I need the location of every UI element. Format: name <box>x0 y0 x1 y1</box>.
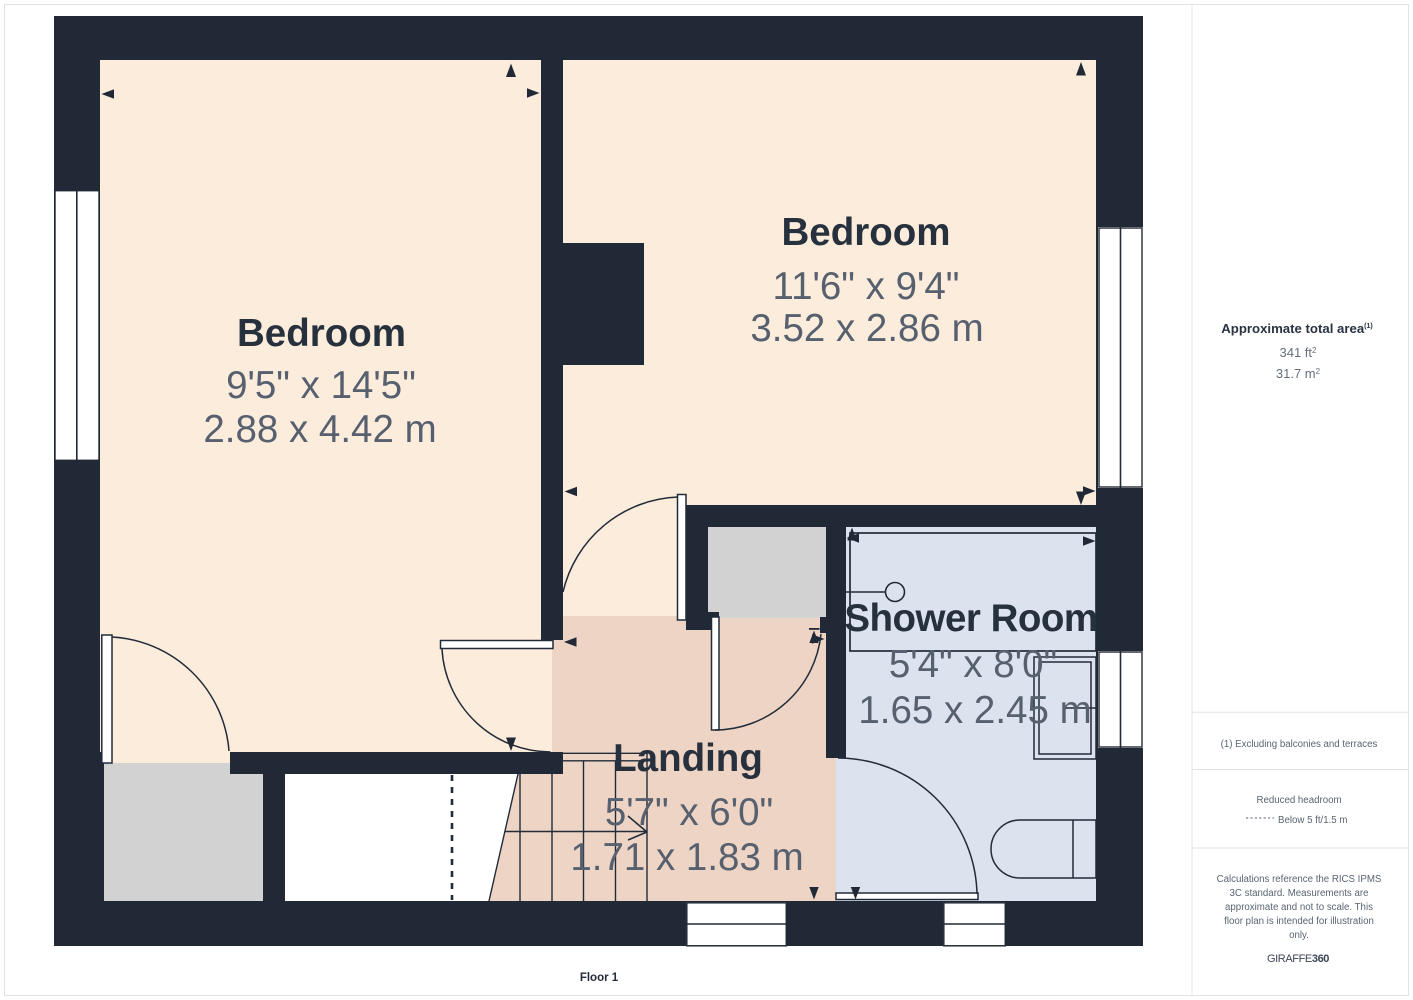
svg-text:9'5" x 14'5": 9'5" x 14'5" <box>226 364 416 407</box>
svg-text:Reduced headroom: Reduced headroom <box>1256 795 1341 806</box>
svg-text:(1) Excluding balconies and te: (1) Excluding balconies and terraces <box>1221 739 1378 750</box>
svg-text:Floor 1: Floor 1 <box>580 972 619 984</box>
svg-text:Below 5 ft/1.5 m: Below 5 ft/1.5 m <box>1278 815 1347 826</box>
svg-text:1.65 x 2.45 m: 1.65 x 2.45 m <box>858 689 1091 732</box>
svg-text:5'7" x 6'0": 5'7" x 6'0" <box>605 791 773 834</box>
svg-text:1.71 x 1.83 m: 1.71 x 1.83 m <box>570 836 803 879</box>
svg-text:approximate and not to scale.: approximate and not to scale. This <box>1225 902 1373 913</box>
svg-text:341 ft2: 341 ft2 <box>1280 345 1318 360</box>
svg-text:Bedroom: Bedroom <box>782 211 951 254</box>
svg-text:5'4" x 8'0": 5'4" x 8'0" <box>889 643 1057 686</box>
svg-text:floor plan is intended for ill: floor plan is intended for illustration <box>1224 916 1374 927</box>
svg-text:11'6" x 9'4": 11'6" x 9'4" <box>773 265 960 308</box>
svg-text:Landing: Landing <box>613 737 763 780</box>
svg-text:31.7 m2: 31.7 m2 <box>1276 366 1321 381</box>
svg-text:only.: only. <box>1289 930 1309 941</box>
svg-text:3.52 x 2.86 m: 3.52 x 2.86 m <box>750 307 983 350</box>
svg-text:2.88 x 4.42 m: 2.88 x 4.42 m <box>203 408 436 451</box>
svg-text:Bedroom: Bedroom <box>237 312 406 355</box>
svg-text:Calculations reference the RIC: Calculations reference the RICS IPMS <box>1217 874 1382 885</box>
svg-text:GIRAFFE360: GIRAFFE360 <box>1267 953 1329 965</box>
svg-text:Approximate total area(1): Approximate total area(1) <box>1221 321 1372 336</box>
svg-text:3C standard. Measurements are: 3C standard. Measurements are <box>1230 888 1369 899</box>
svg-text:Shower Room: Shower Room <box>844 597 1097 640</box>
